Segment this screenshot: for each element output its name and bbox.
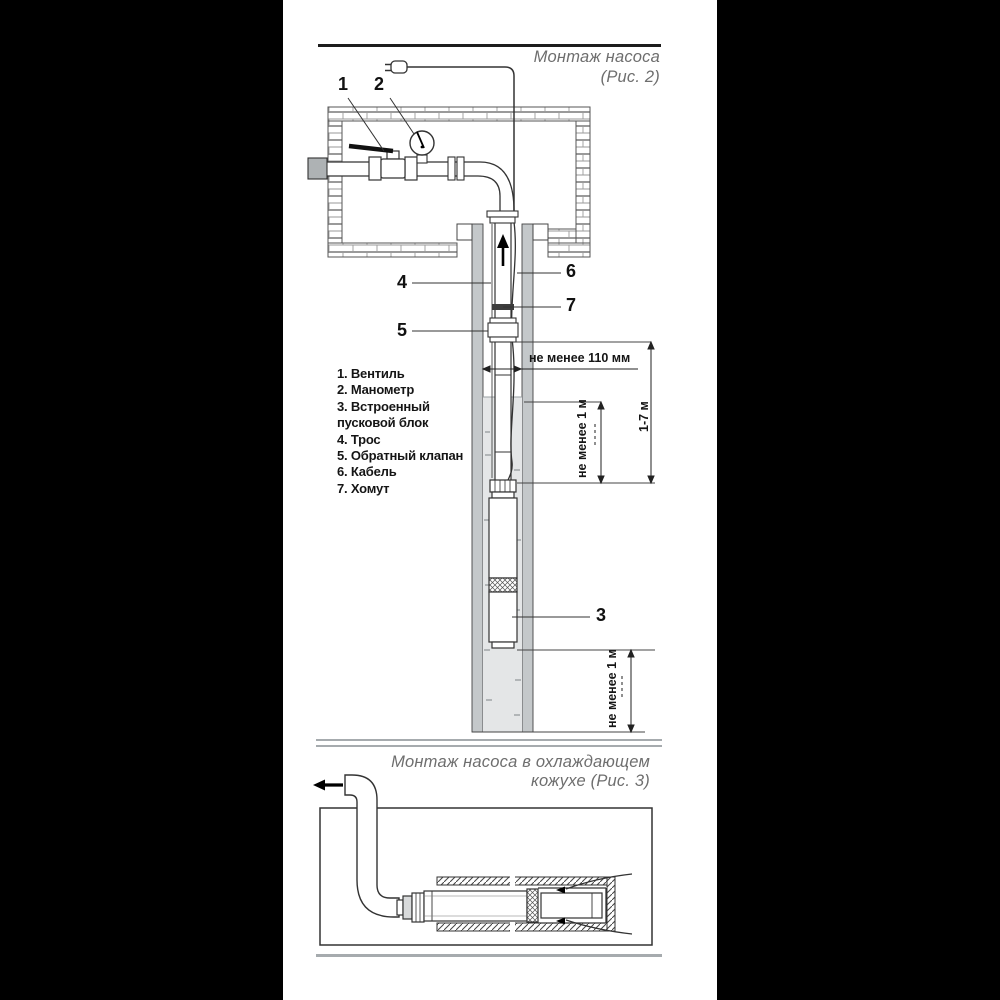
legend-item: 6. Кабель — [337, 464, 463, 480]
callout-5: 5 — [391, 320, 413, 341]
divider — [316, 954, 662, 957]
callout-1: 1 — [332, 74, 354, 95]
reference-lines — [513, 342, 655, 650]
callout-3: 3 — [590, 605, 612, 626]
legend: 1. Вентиль 2. Манометр 3. Встроенный пус… — [337, 366, 463, 497]
legend-item: 1. Вентиль — [337, 366, 463, 382]
legend-item: 3. Встроенный — [337, 399, 463, 415]
legend-item: пусковой блок — [337, 415, 463, 431]
dimension-min-submersion: не менее 1 м — [575, 399, 589, 478]
legend-item: 7. Хомут — [337, 481, 463, 497]
page: Монтаж насоса (Рис. 2) — [0, 0, 1000, 1000]
legend-item: 2. Манометр — [337, 382, 463, 398]
callout-6: 6 — [560, 261, 582, 282]
check-valve — [488, 318, 518, 342]
divider — [316, 739, 662, 741]
cooling-jacket-diagram — [283, 750, 717, 960]
dimension-min-width: не менее 110 мм — [529, 351, 630, 365]
submersible-pump — [489, 480, 517, 648]
power-plug-icon — [385, 61, 514, 211]
callout-2: 2 — [368, 74, 390, 95]
dimension-bottom-clearance: не менее 1 м — [605, 649, 619, 728]
callout-7: 7 — [560, 295, 582, 316]
dimension-cable-range: 1-7 м — [637, 401, 651, 432]
callout-4: 4 — [391, 272, 413, 293]
legend-item: 5. Обратный клапан — [337, 448, 463, 464]
discharge-pipe — [345, 775, 399, 917]
divider — [316, 745, 662, 747]
horizontal-pump — [397, 888, 606, 923]
outlet-arrow-icon — [313, 780, 343, 791]
legend-item: 4. Трос — [337, 432, 463, 448]
